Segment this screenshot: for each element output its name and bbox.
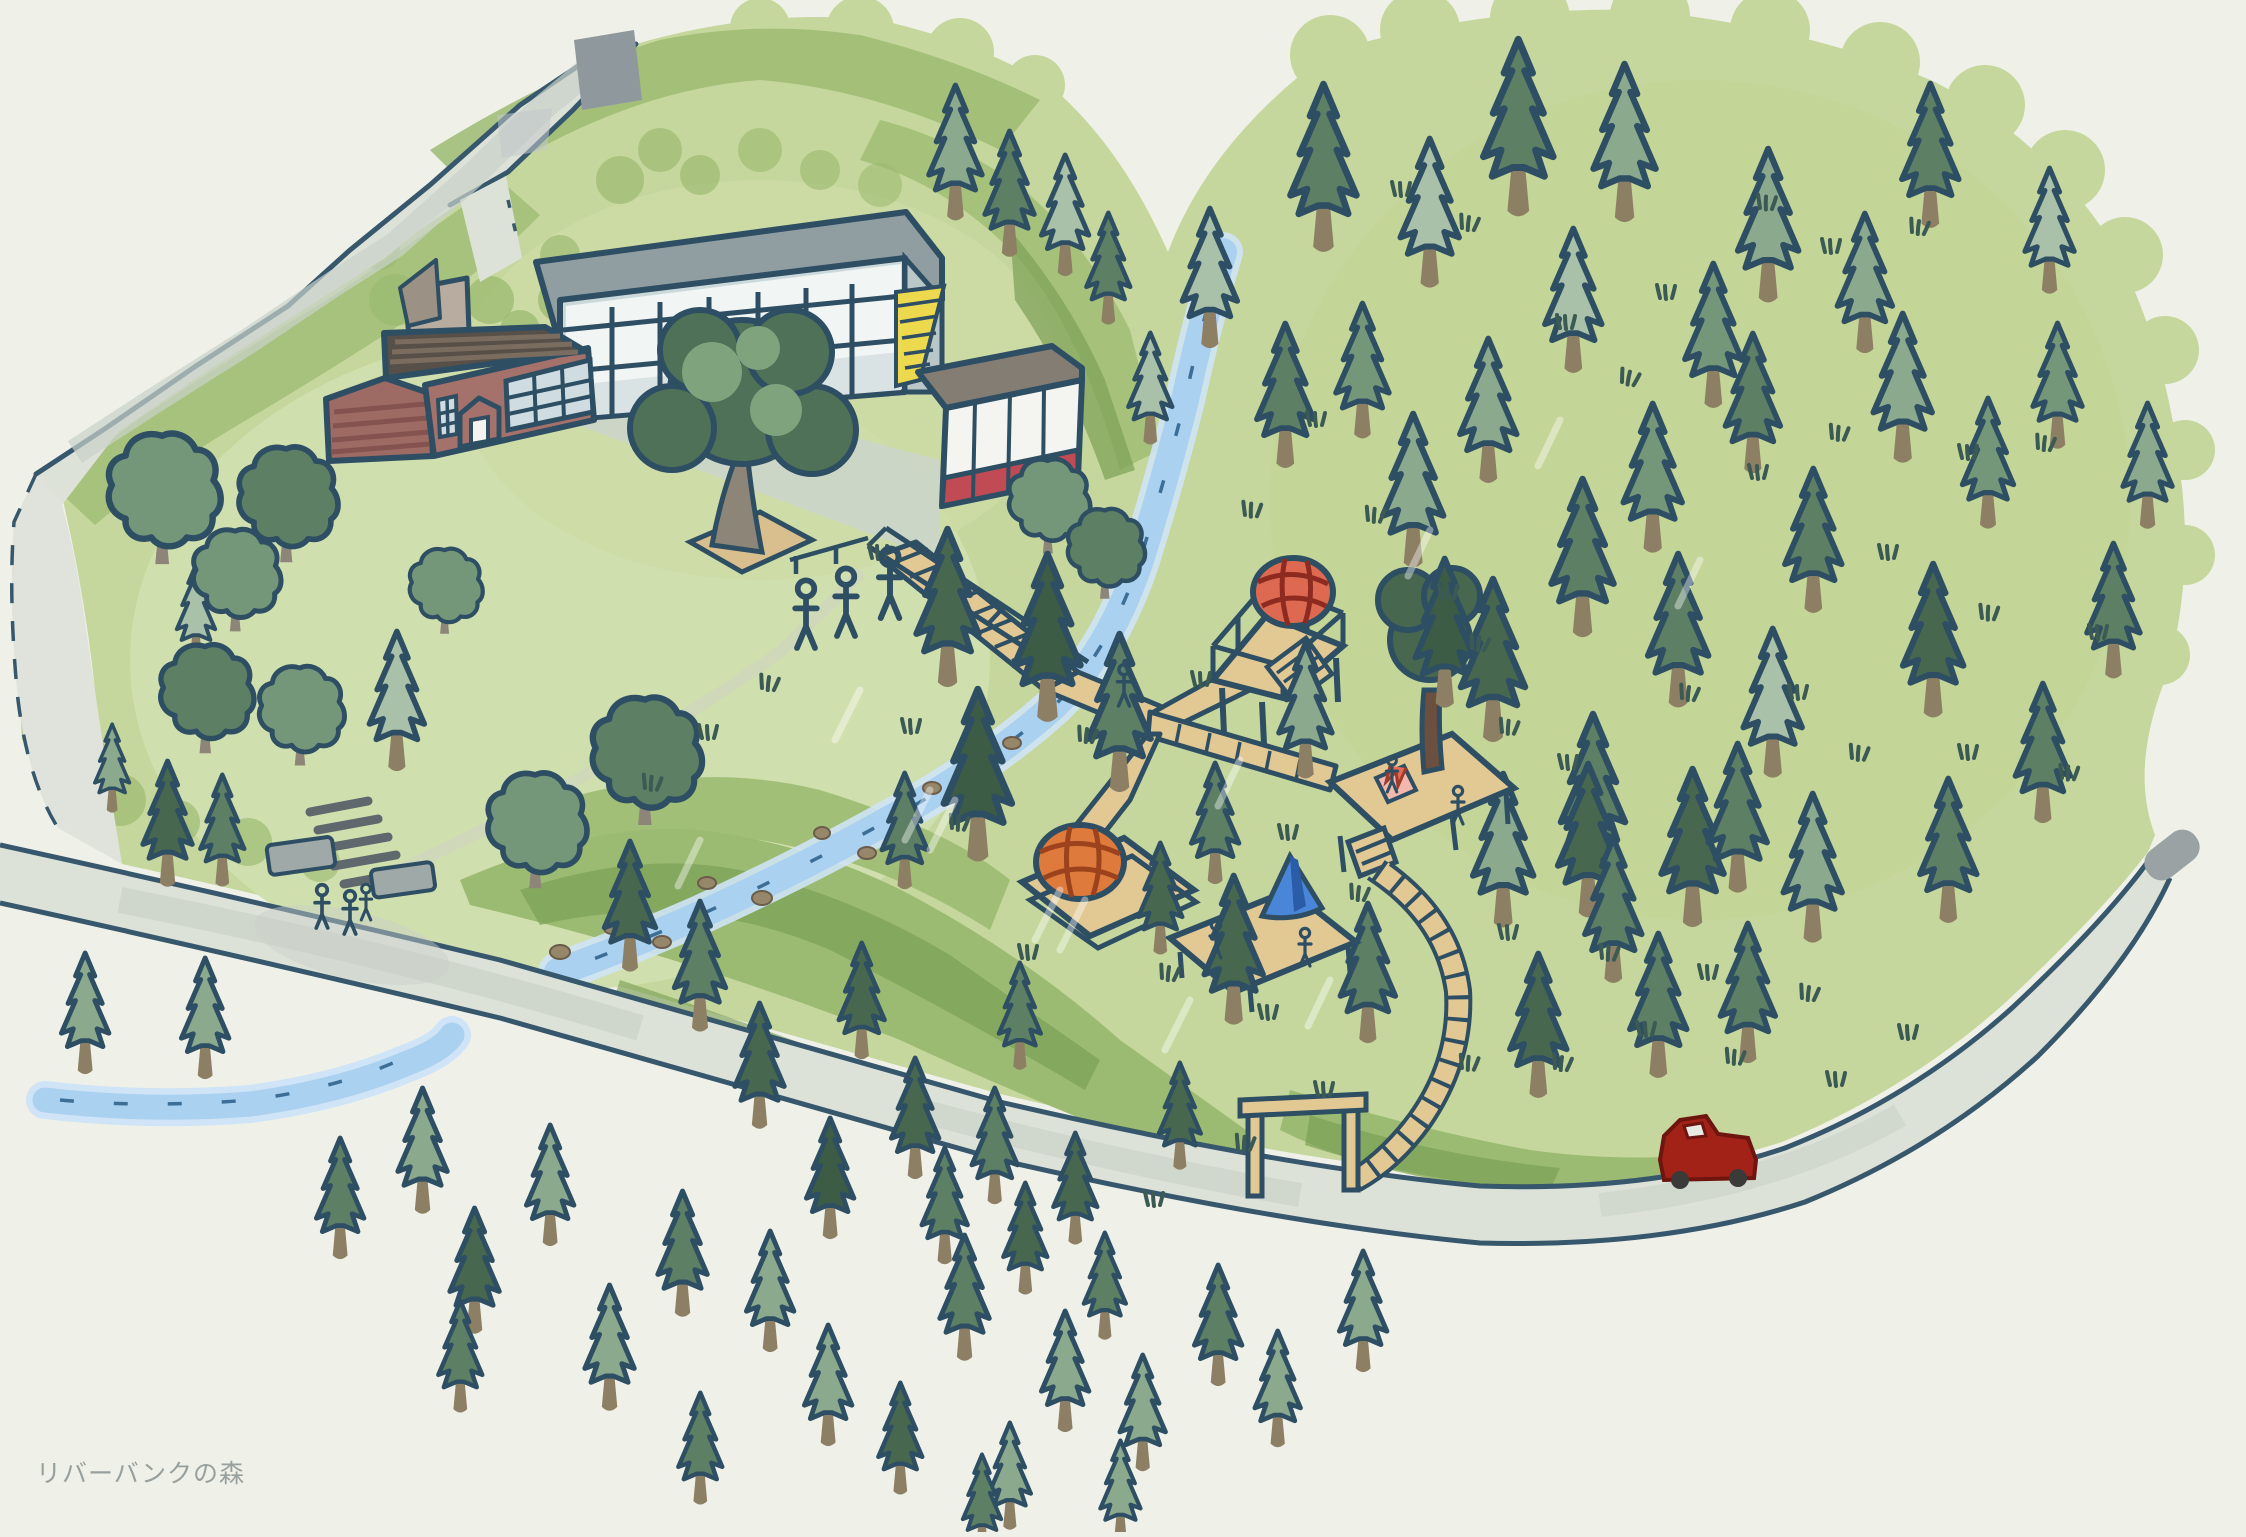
svg-text:リバーバンクの森: リバーバンクの森 (36, 1460, 245, 1488)
